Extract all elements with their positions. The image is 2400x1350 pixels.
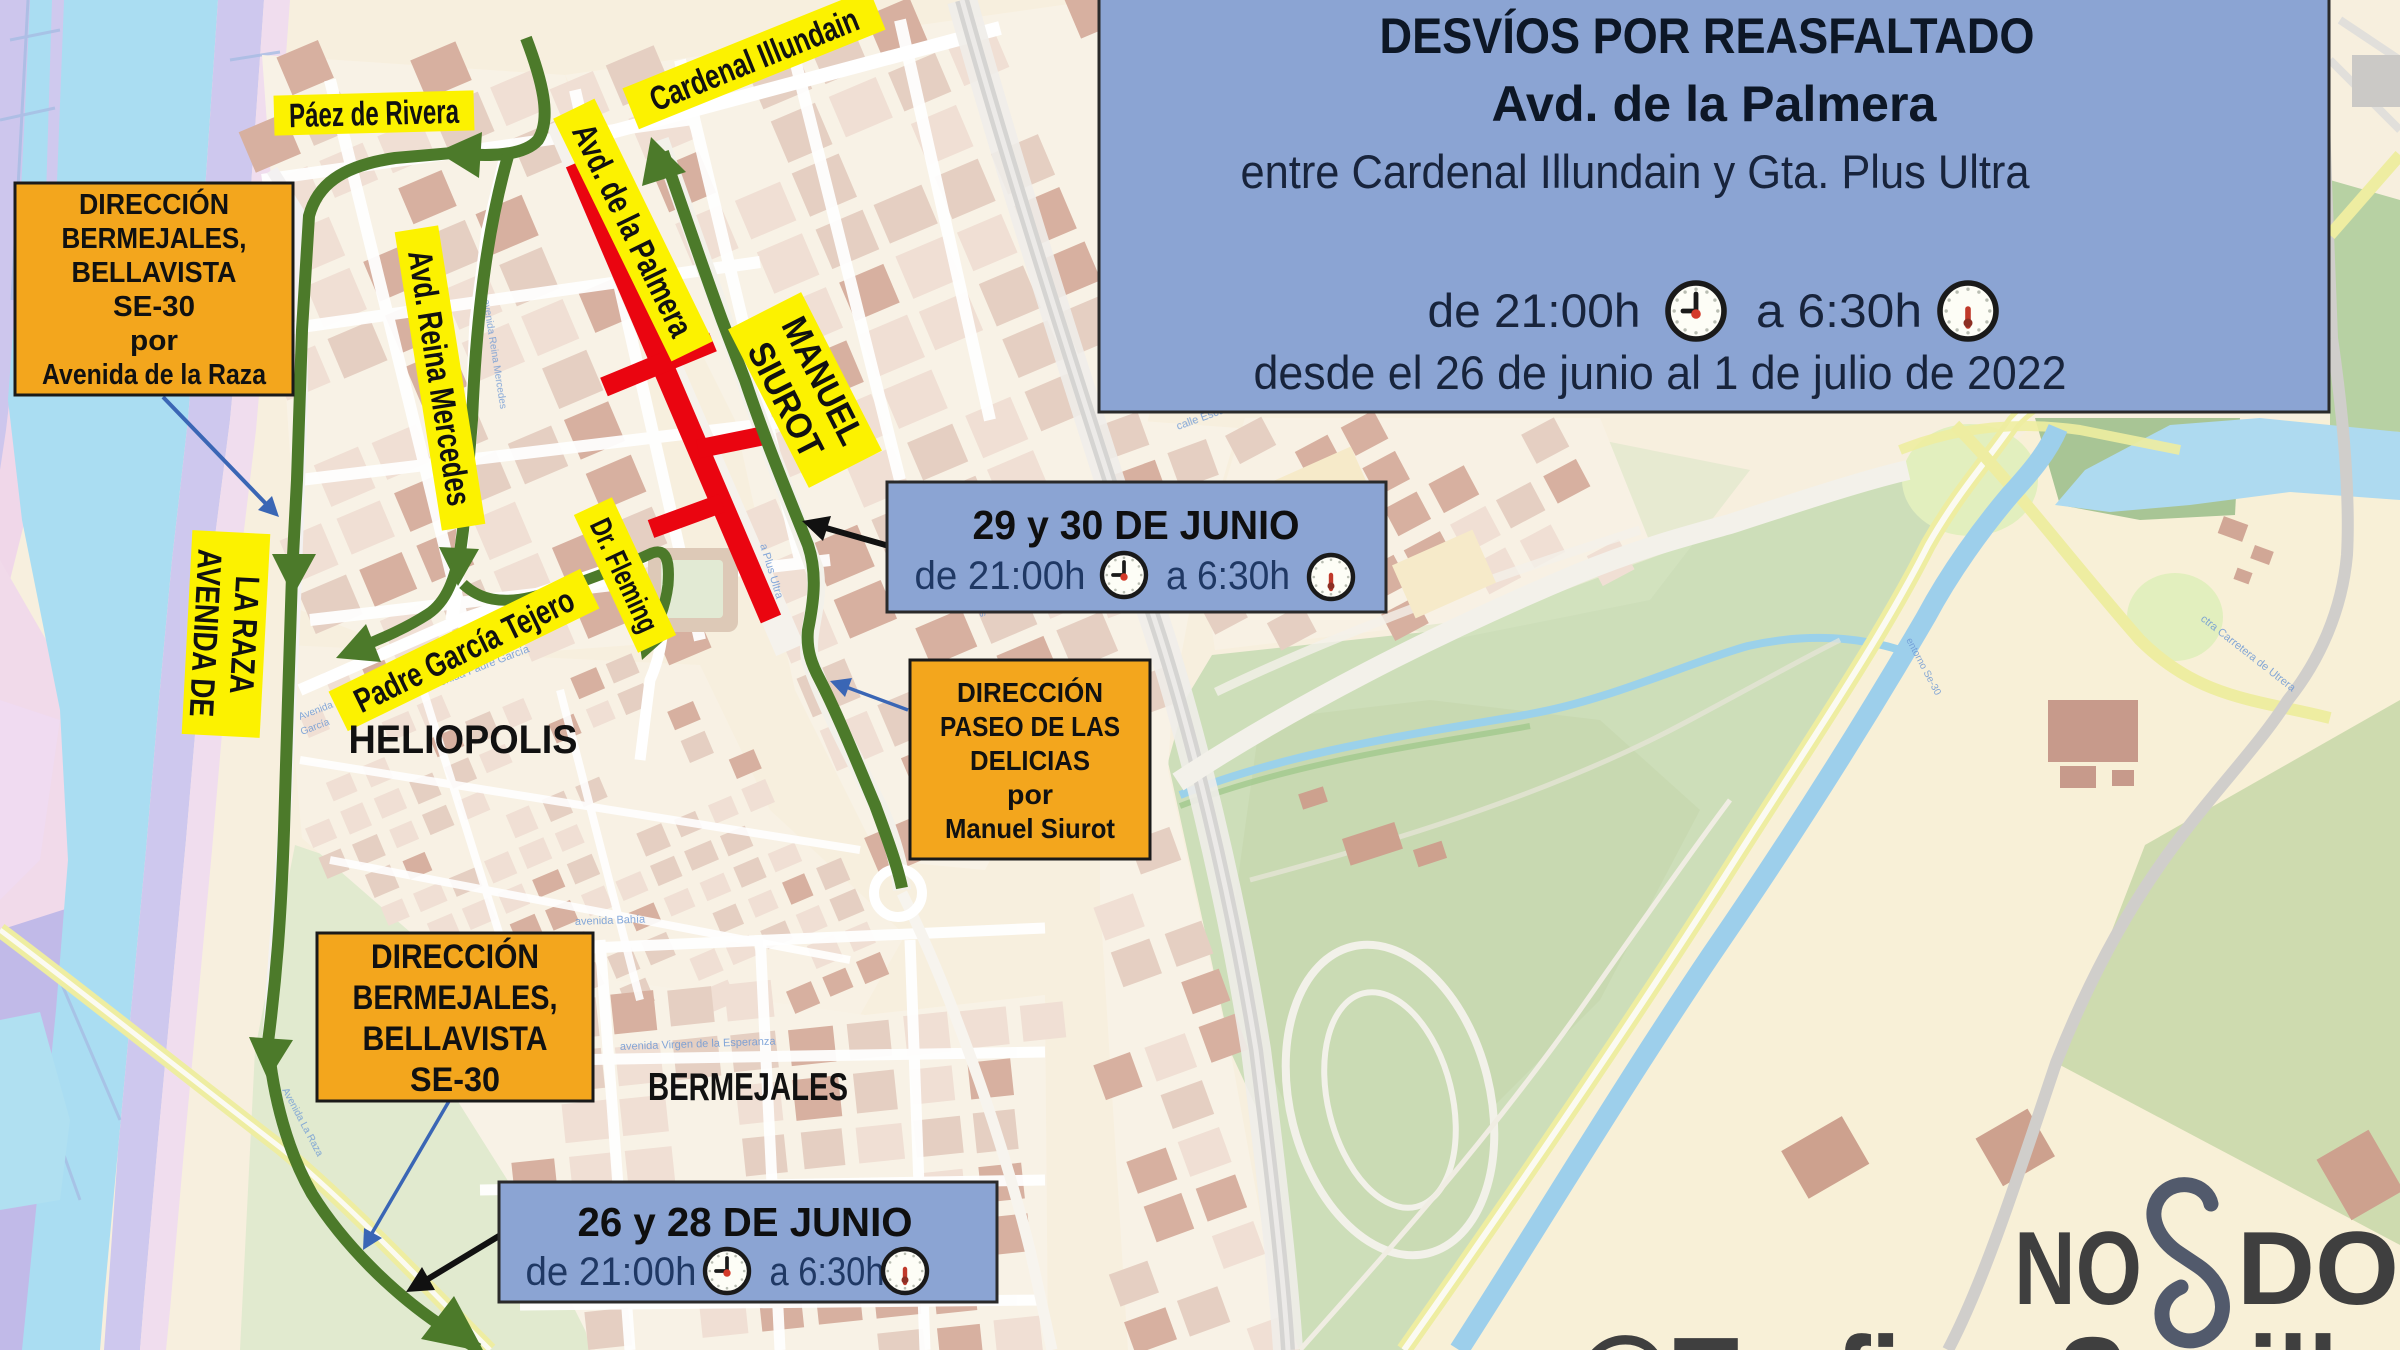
svg-text:BELLAVISTA: BELLAVISTA <box>363 1020 548 1058</box>
svg-text:de 21:00h: de 21:00h <box>526 1250 697 1294</box>
svg-text:a 6:30h: a 6:30h <box>1756 284 1922 337</box>
svg-text:DIRECCIÓN: DIRECCIÓN <box>371 938 539 976</box>
svg-text:a 6:30h: a 6:30h <box>1166 554 1290 598</box>
svg-text:Avd. de la Palmera: Avd. de la Palmera <box>1492 76 1938 132</box>
svg-text:@Trafico Sevilla: @Trafico Sevilla <box>1568 1309 2399 1350</box>
svg-text:a 6:30h: a 6:30h <box>770 1250 885 1294</box>
svg-text:Avenida de la Raza: Avenida de la Raza <box>42 359 267 391</box>
svg-text:BELLAVISTA: BELLAVISTA <box>72 257 237 289</box>
svg-text:desde el 26 de junio al 1 de j: desde el 26 de junio al 1 de julio de 20… <box>1254 346 2067 399</box>
svg-text:BERMEJALES: BERMEJALES <box>648 1066 848 1109</box>
svg-text:PASEO DE LAS: PASEO DE LAS <box>940 711 1120 742</box>
svg-text:SE-30: SE-30 <box>410 1061 500 1099</box>
svg-text:entre Cardenal Illundain y Gta: entre Cardenal Illundain y Gta. Plus Ult… <box>1241 145 2031 198</box>
svg-text:de 21:00h: de 21:00h <box>1428 284 1641 337</box>
svg-text:SE-30: SE-30 <box>113 291 195 323</box>
svg-text:DELICIAS: DELICIAS <box>970 745 1090 776</box>
svg-text:por: por <box>1007 779 1053 810</box>
svg-text:29 y 30 DE JUNIO: 29 y 30 DE JUNIO <box>973 502 1300 548</box>
svg-text:por: por <box>130 325 178 357</box>
svg-text:Manuel Siurot: Manuel Siurot <box>945 813 1115 844</box>
svg-text:BERMEJALES,: BERMEJALES, <box>62 223 247 255</box>
svg-text:DIRECCIÓN: DIRECCIÓN <box>79 187 229 221</box>
svg-text:BERMEJALES,: BERMEJALES, <box>353 979 558 1017</box>
svg-text:26 y 28 DE JUNIO: 26 y 28 DE JUNIO <box>578 1199 913 1245</box>
svg-text:LA RAZA: LA RAZA <box>222 575 266 695</box>
svg-text:DIRECCIÓN: DIRECCIÓN <box>957 677 1103 708</box>
svg-text:DESVÍOS POR REASFALTADO: DESVÍOS POR REASFALTADO <box>1380 8 2035 64</box>
svg-text:Páez de Rivera: Páez de Rivera <box>289 93 461 135</box>
svg-text:de 21:00h: de 21:00h <box>915 554 1086 598</box>
svg-text:HELIOPOLIS: HELIOPOLIS <box>349 718 578 762</box>
